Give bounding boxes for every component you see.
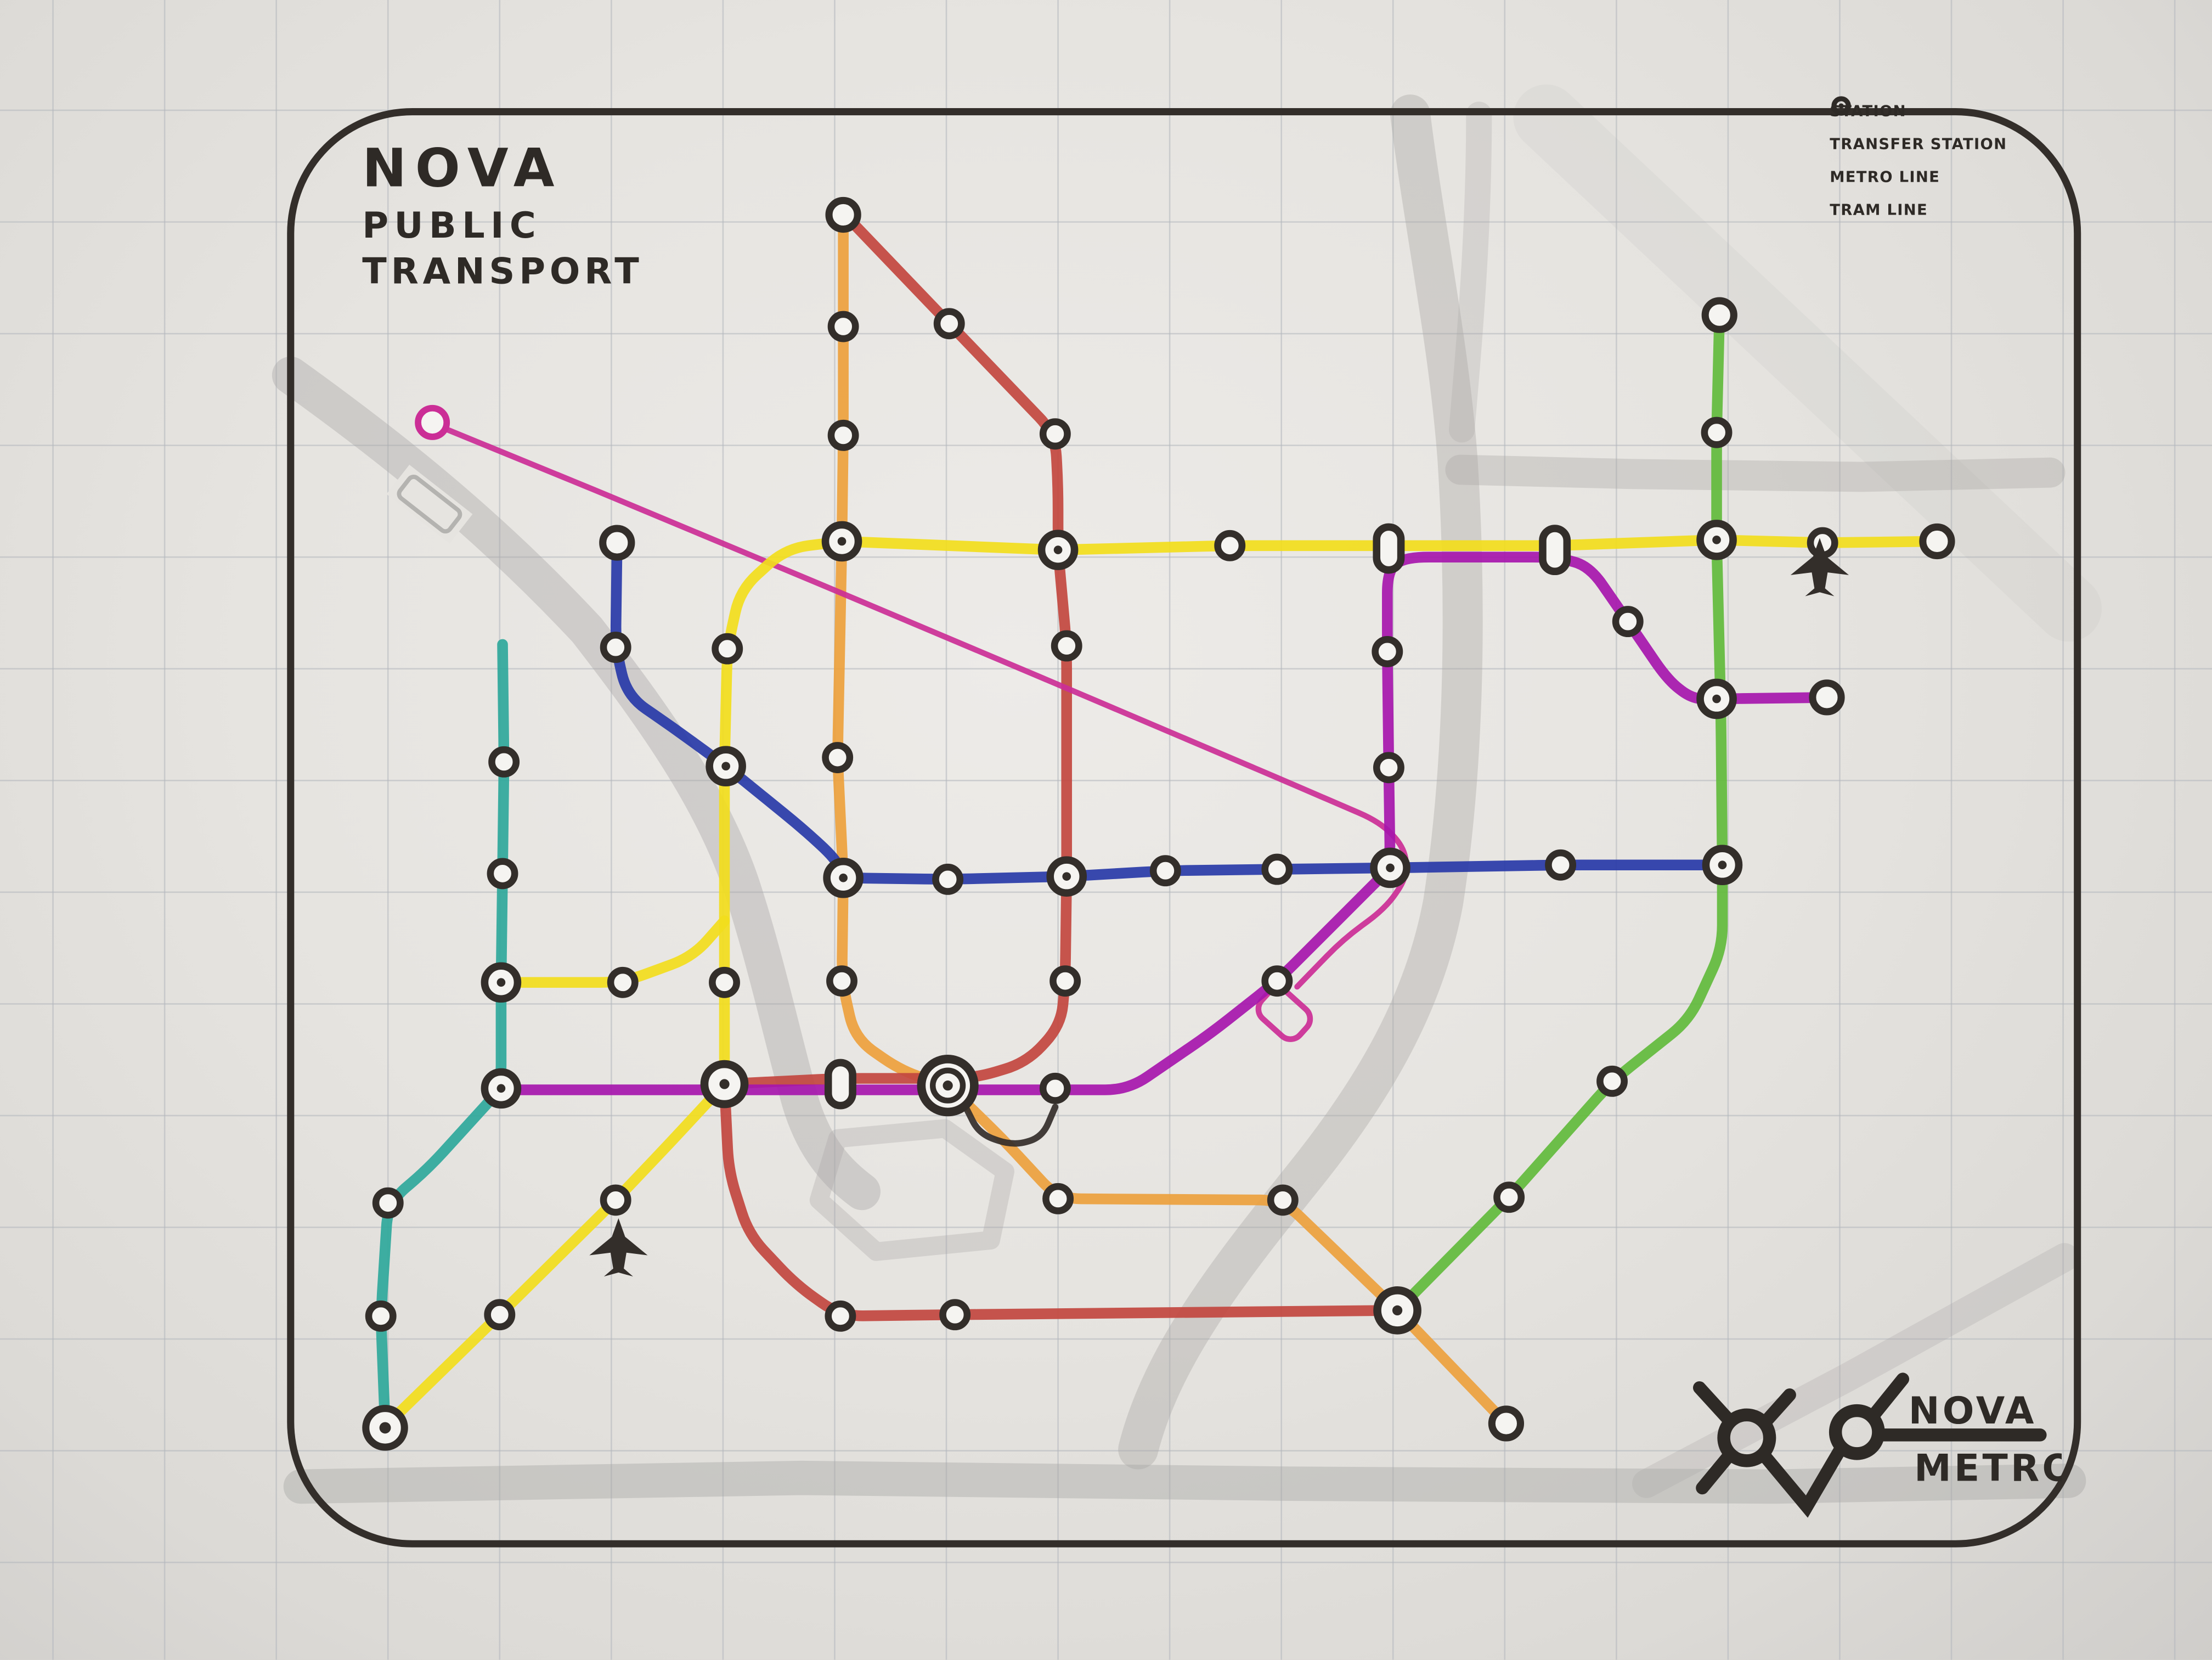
station [369,1304,393,1328]
title-line-transport: TRANSPORT [362,254,643,289]
river-stroke [1138,115,1463,1449]
station [603,1188,628,1212]
terminus-station [1813,683,1841,712]
tram-line-blank-icon [1830,94,1853,117]
station [1616,609,1640,633]
station [1043,1076,1067,1100]
legend-label: TRANSFER STATION [1830,136,2007,153]
station [937,312,961,336]
terminus-station [1705,301,1734,329]
legend-label: TRAM LINE [1830,201,1928,218]
station [1705,420,1729,444]
station [831,314,855,339]
station [1548,853,1572,877]
legend-row-tram-line: TRAM LINE [1830,193,2007,226]
station [1153,859,1177,883]
station [1271,1188,1295,1212]
legend-label: METRO LINE [1830,168,1940,185]
title-line-public: PUBLIC [362,207,643,243]
station [1053,969,1077,993]
magenta-tram-line [444,428,1406,987]
legend-row-metro-line: METRO LINE [1830,160,2007,193]
station [830,969,854,993]
map-legend: STATION TRANSFER STATION METRO LINE TRAM… [1830,94,2007,226]
station [943,1303,967,1327]
legend-row-station: STATION [1830,94,2007,127]
title-line-nova: NOVA [362,142,643,195]
map-title: NOVA PUBLIC TRANSPORT [362,142,643,289]
logo-v-stroke [1764,1448,1841,1506]
pill-transfer-station [1543,528,1567,571]
station [1046,1186,1070,1211]
station [611,970,635,994]
river-stroke [1462,115,1479,430]
terminus-station [1923,527,1951,555]
station [1043,422,1067,446]
station [1376,756,1401,780]
station [1497,1185,1521,1209]
pill-transfer-station [1376,527,1401,570]
station [828,1304,853,1328]
station [715,637,740,661]
legend-row-transfer-station: TRANSFER STATION [1830,127,2007,160]
station [825,745,849,769]
terminus-station [1492,1409,1520,1438]
river-stroke [291,375,862,1192]
station [1218,533,1242,558]
station [1265,857,1289,881]
station [712,970,736,994]
station [831,423,855,447]
station [603,635,628,659]
airport-icons [589,538,1849,1276]
station [376,1191,400,1215]
terminus-station [829,200,857,229]
logo-text-metro: METRO [1914,1447,2062,1490]
tram-terminus-station [418,408,447,437]
station [490,862,515,886]
station [1375,639,1400,663]
station [1600,1069,1624,1093]
logo-text-nova: NOVA [1909,1389,2037,1433]
station [488,1303,512,1327]
station [935,867,960,891]
terminus-station [603,528,631,557]
photo-of-hand-drawn-transit-map: NOVA PUBLIC TRANSPORT STATION TRANSFER S… [0,0,2212,1660]
station [1054,634,1079,658]
station [492,750,516,774]
river-and-roads [291,115,2069,1487]
station [1265,969,1289,993]
pill-transfer-station [828,1062,853,1105]
nova-metro-logo: NOVA METRO [1675,1360,2062,1532]
